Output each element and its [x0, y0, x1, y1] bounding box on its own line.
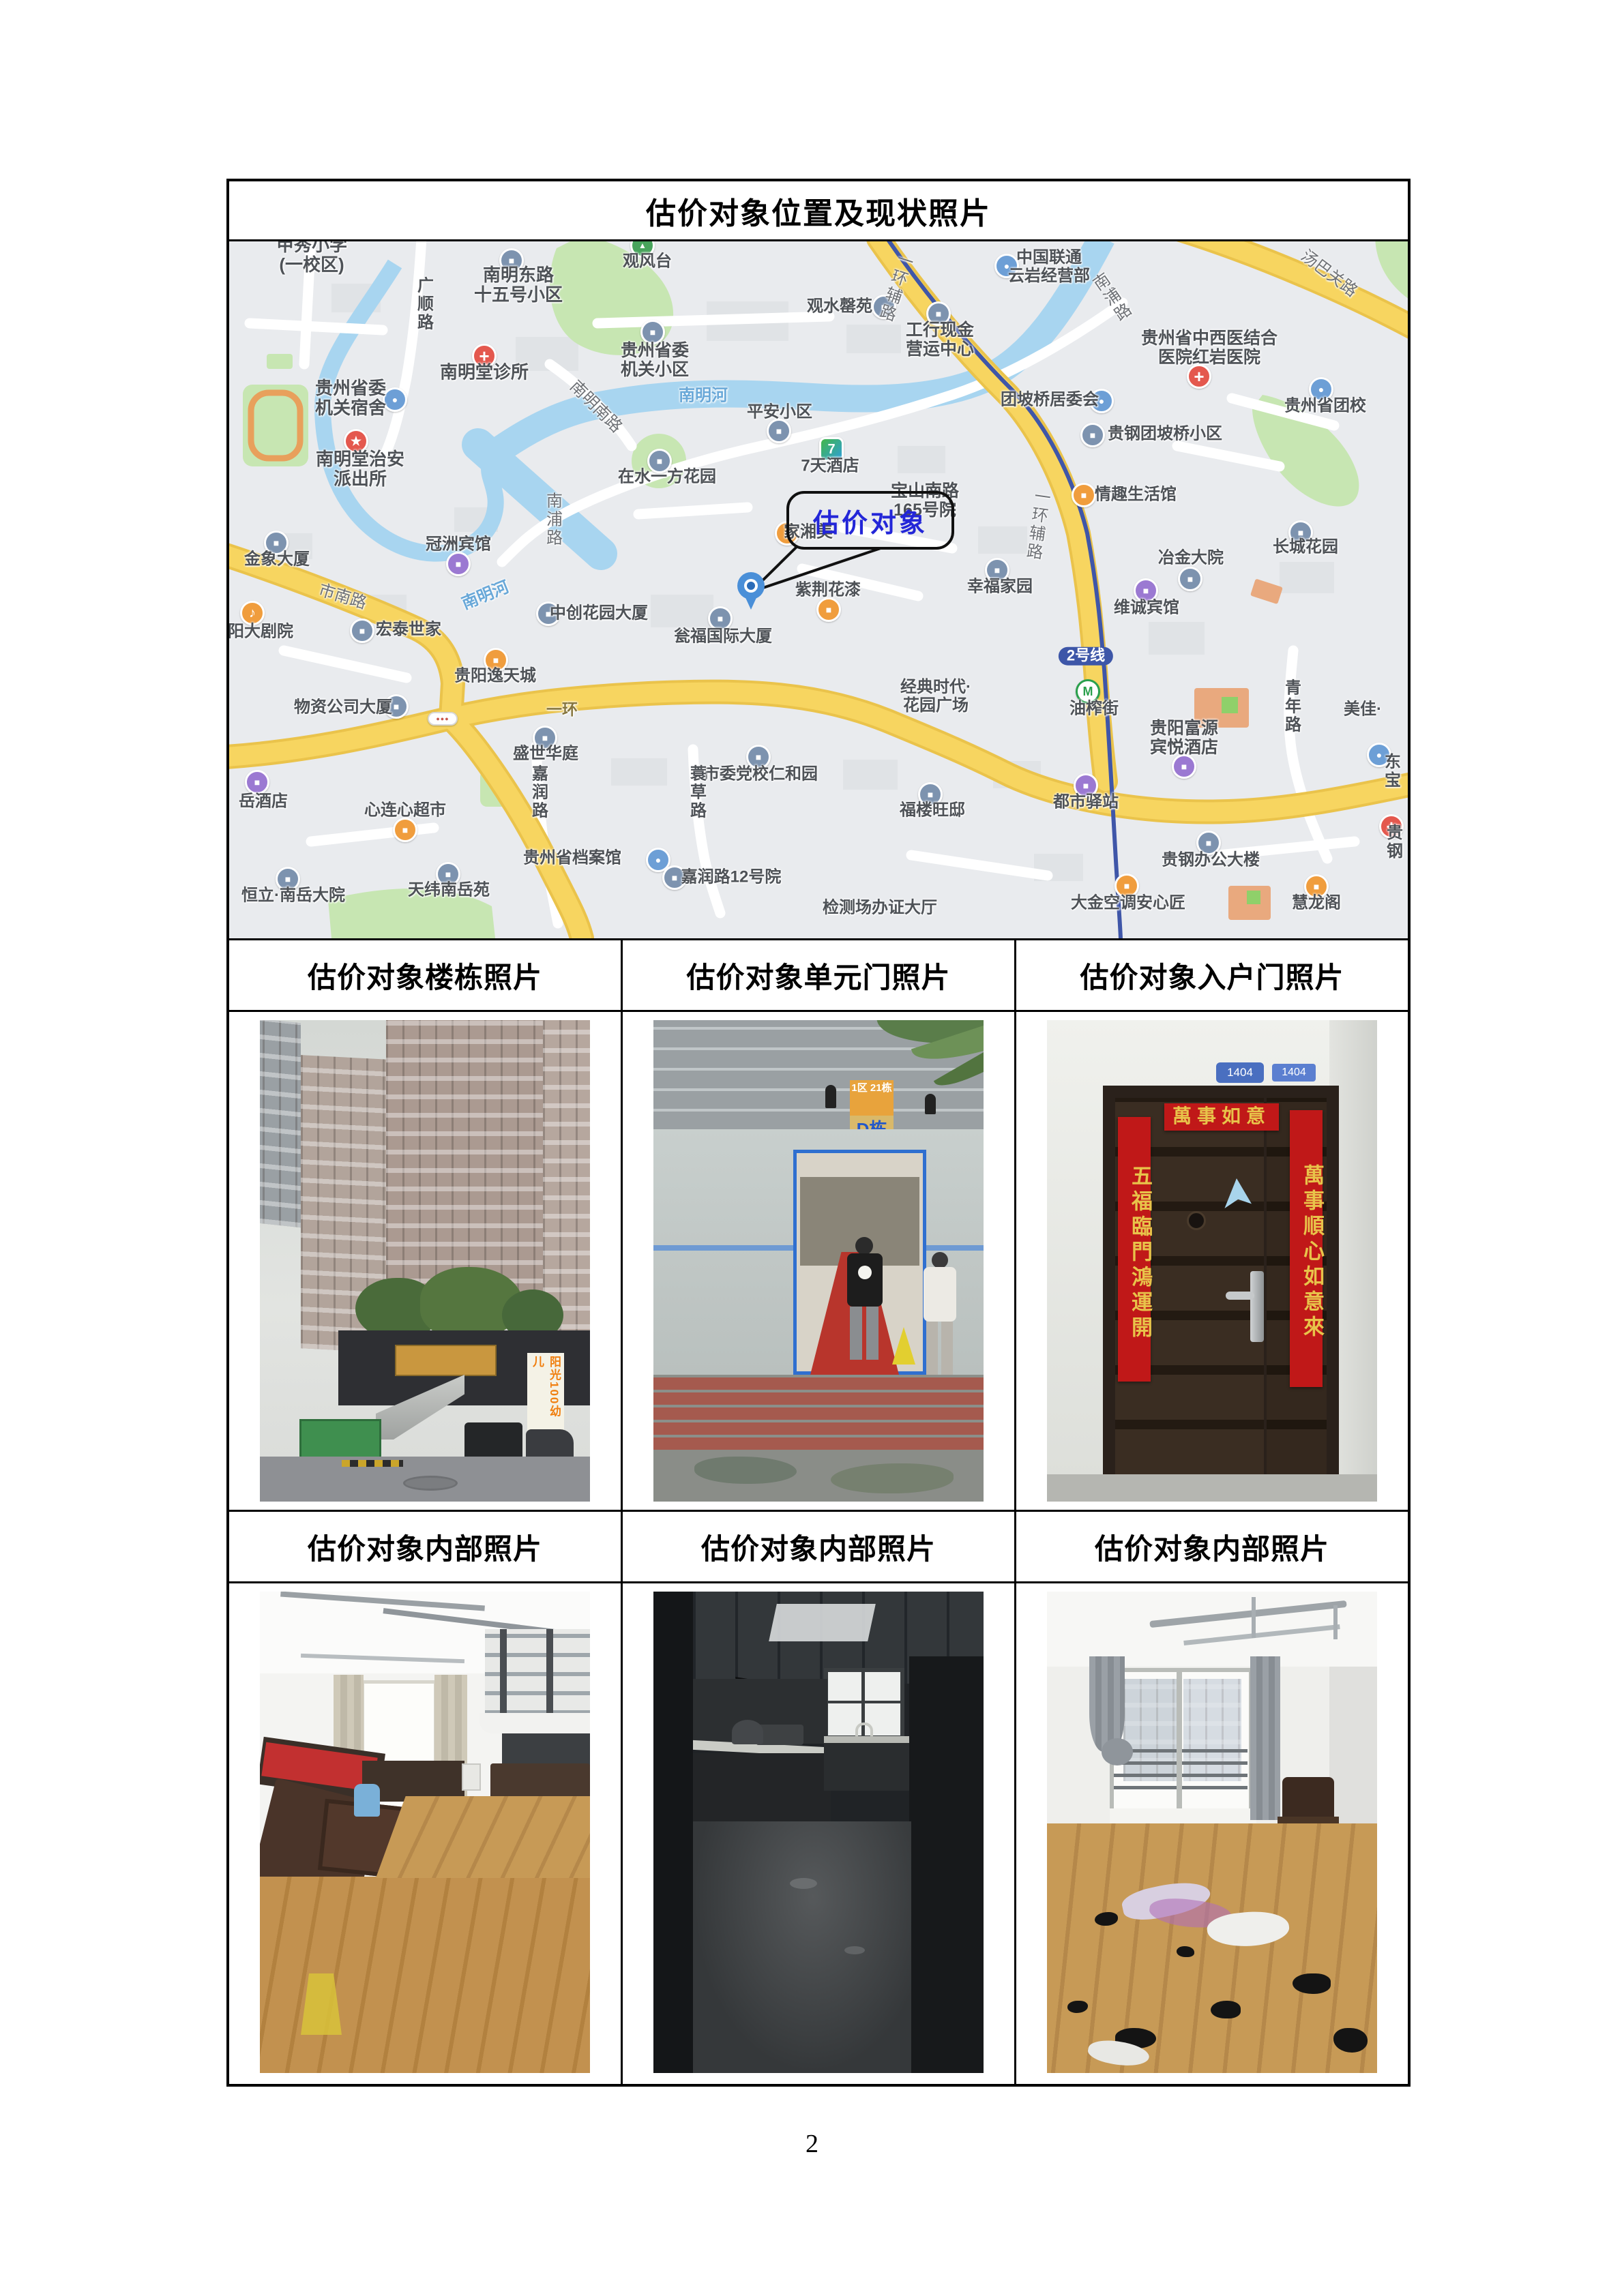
door-couplet-right: 萬事順心如意來	[1290, 1110, 1323, 1387]
map-label: 贵钢	[1387, 824, 1403, 861]
map-label: 团坡桥居委会	[1001, 391, 1099, 410]
map-label: 蓑草路	[687, 765, 705, 820]
map-label: 中创花园大厦	[550, 605, 648, 623]
interior-photo-living-room	[260, 1592, 590, 2073]
map-label: 南明堂治安 派出所	[316, 449, 404, 489]
map-label: 工行现金 营运中心	[906, 320, 974, 359]
map-label: 贵钢团坡桥小区	[1108, 426, 1222, 444]
interior-photo-bedroom	[1047, 1592, 1377, 2073]
map-label: 贵钢办公大楼	[1162, 852, 1260, 870]
map-label: 一环辅路	[874, 248, 915, 324]
table-title: 估价对象位置及现状照片	[229, 181, 1408, 241]
photo-row-1: 阳光100幼儿 千兆宽带 1区 21栋	[229, 1012, 1408, 1512]
map-label: 福楼旺邸	[900, 802, 965, 820]
callout-text: 估价对象	[813, 502, 928, 539]
map-label: 阳大剧院	[229, 623, 293, 642]
map-label: 甲秀小学 (一校区)	[276, 241, 347, 275]
map-label: 都市驿站	[1053, 794, 1119, 812]
map-label: 大金空调安心匠	[1071, 895, 1185, 913]
door-plate-2: 1404	[1272, 1064, 1316, 1082]
map-label: 观水罄苑	[807, 298, 872, 316]
map-label: 检测场办证大厅	[823, 899, 937, 918]
map-label: 宏泰世家	[376, 621, 441, 640]
header-entry-door-photo: 估价对象入户门照片	[1016, 940, 1408, 1010]
map-label: 汤巴关路	[1297, 247, 1361, 301]
interior-photo-kitchen	[653, 1592, 984, 2073]
header-interior-photo-2: 估价对象内部照片	[623, 1512, 1016, 1581]
map-label: 贵州省团校	[1284, 398, 1366, 416]
map-label: 南浦路	[1087, 271, 1134, 327]
map-poi-labels: 甲秀小学 (一校区)广顺路南明东路 十五号小区观风台观水罄苑中国联通 云岩经营部…	[229, 241, 1408, 938]
unit-door-photo: 1区 21栋 D栋	[653, 1020, 984, 1502]
map-label: 平安小区	[747, 404, 812, 422]
map-label: 冠洲宾馆	[426, 536, 491, 554]
map-label: 贵阳富源 宾悦酒店	[1150, 719, 1218, 757]
map-label: 青年路	[1282, 679, 1300, 734]
map-label: 冶金大院	[1158, 550, 1224, 568]
map-label: 南明南路	[566, 378, 625, 437]
map-label: 贵州省委 机关小区	[621, 341, 689, 379]
location-map: ■▲■●■+●+■★●■●■7■■■■■■■■■■■M■■■■●■■■■■■■■…	[229, 241, 1408, 940]
photo-header-row-2: 估价对象内部照片 估价对象内部照片 估价对象内部照片	[229, 1512, 1408, 1583]
map-label: 美佳·	[1344, 701, 1382, 719]
map-label: 嘉润路12号院	[681, 869, 782, 887]
door-banner: 萬事如意	[1164, 1103, 1279, 1131]
header-unit-door-photo: 估价对象单元门照片	[623, 940, 1016, 1010]
map-label: 心连心超市	[364, 802, 446, 820]
map-label: 一环辅路	[1022, 487, 1050, 563]
map-label: 观风台	[623, 253, 672, 271]
building-photo: 阳光100幼儿 千兆宽带	[260, 1020, 590, 1502]
map-label: 情趣生活馆	[1095, 486, 1177, 505]
map-label: 中国联通 云岩经营部	[1008, 249, 1090, 286]
map-label: 贵州省档案馆	[523, 850, 621, 868]
map-label: 贵州省委 机关宿舍	[315, 378, 386, 418]
header-building-photo: 估价对象楼栋照片	[229, 940, 623, 1010]
map-label: 南明河	[679, 387, 728, 406]
map-label: 油榨街	[1069, 700, 1119, 719]
map-label: 幸福家园	[967, 578, 1033, 597]
entry-door-photo: 1404 1404 萬事如意 五福臨門鴻運開 萬事順心如意來	[1047, 1020, 1377, 1502]
photo-row-2	[229, 1583, 1408, 2084]
map-label: 在水一方花园	[618, 468, 716, 487]
map-label: 2号线	[1059, 647, 1113, 666]
map-label: 岳酒店	[239, 793, 288, 811]
map-label: 嘉润路	[529, 765, 547, 820]
map-label: 盛世华庭	[513, 745, 578, 764]
header-interior-photo-3: 估价对象内部照片	[1016, 1512, 1408, 1581]
map-label: 慧龙阁	[1292, 895, 1341, 913]
map-label: 维诚宾馆	[1114, 599, 1179, 618]
map-label: 7天酒店	[801, 458, 859, 476]
map-label: 长城花园	[1273, 539, 1338, 557]
map-label: 瓮福国际大厦	[674, 628, 772, 646]
map-label: 市南路	[316, 582, 369, 614]
photo-table: 估价对象位置及现状照片	[226, 179, 1411, 2087]
door-couplet-left: 五福臨門鴻運開	[1118, 1117, 1151, 1382]
map-label: 经典时代· 花园广场	[900, 679, 971, 715]
map-label: 贵州省中西医结合 医院红岩医院	[1141, 329, 1278, 367]
map-label: 恒立·南岳大院	[241, 887, 345, 906]
door-plate: 1404	[1216, 1062, 1264, 1083]
kindergarten-sign: 阳光100幼儿	[527, 1353, 564, 1433]
map-label: 市委党校仁和园	[703, 766, 818, 784]
map-label: 一环	[546, 701, 578, 719]
callout-bubble: 估价对象	[786, 491, 954, 550]
map-label: 南浦路	[543, 492, 561, 548]
map-label: 广顺路	[414, 277, 432, 332]
report-page: 估价对象位置及现状照片	[0, 0, 1624, 2296]
map-label: 南明河	[460, 578, 512, 614]
map-label: 贵阳逸天城	[454, 668, 536, 686]
map-label: 物资公司大厦	[294, 699, 392, 717]
building-number-sign: 1区 21栋	[850, 1080, 894, 1116]
map-label: 南明东路 十五号小区	[474, 265, 563, 305]
page-number: 2	[0, 2129, 1624, 2159]
map-label: 天纬南岳苑	[408, 882, 490, 900]
photo-header-row-1: 估价对象楼栋照片 估价对象单元门照片 估价对象入户门照片	[229, 940, 1408, 1012]
map-label: 紫荆花漆	[795, 582, 861, 600]
header-interior-photo-1: 估价对象内部照片	[229, 1512, 623, 1581]
map-label: 东宝	[1385, 754, 1401, 790]
map-label: 南明堂诊所	[440, 362, 529, 382]
map-label: 金象大厦	[244, 551, 310, 569]
